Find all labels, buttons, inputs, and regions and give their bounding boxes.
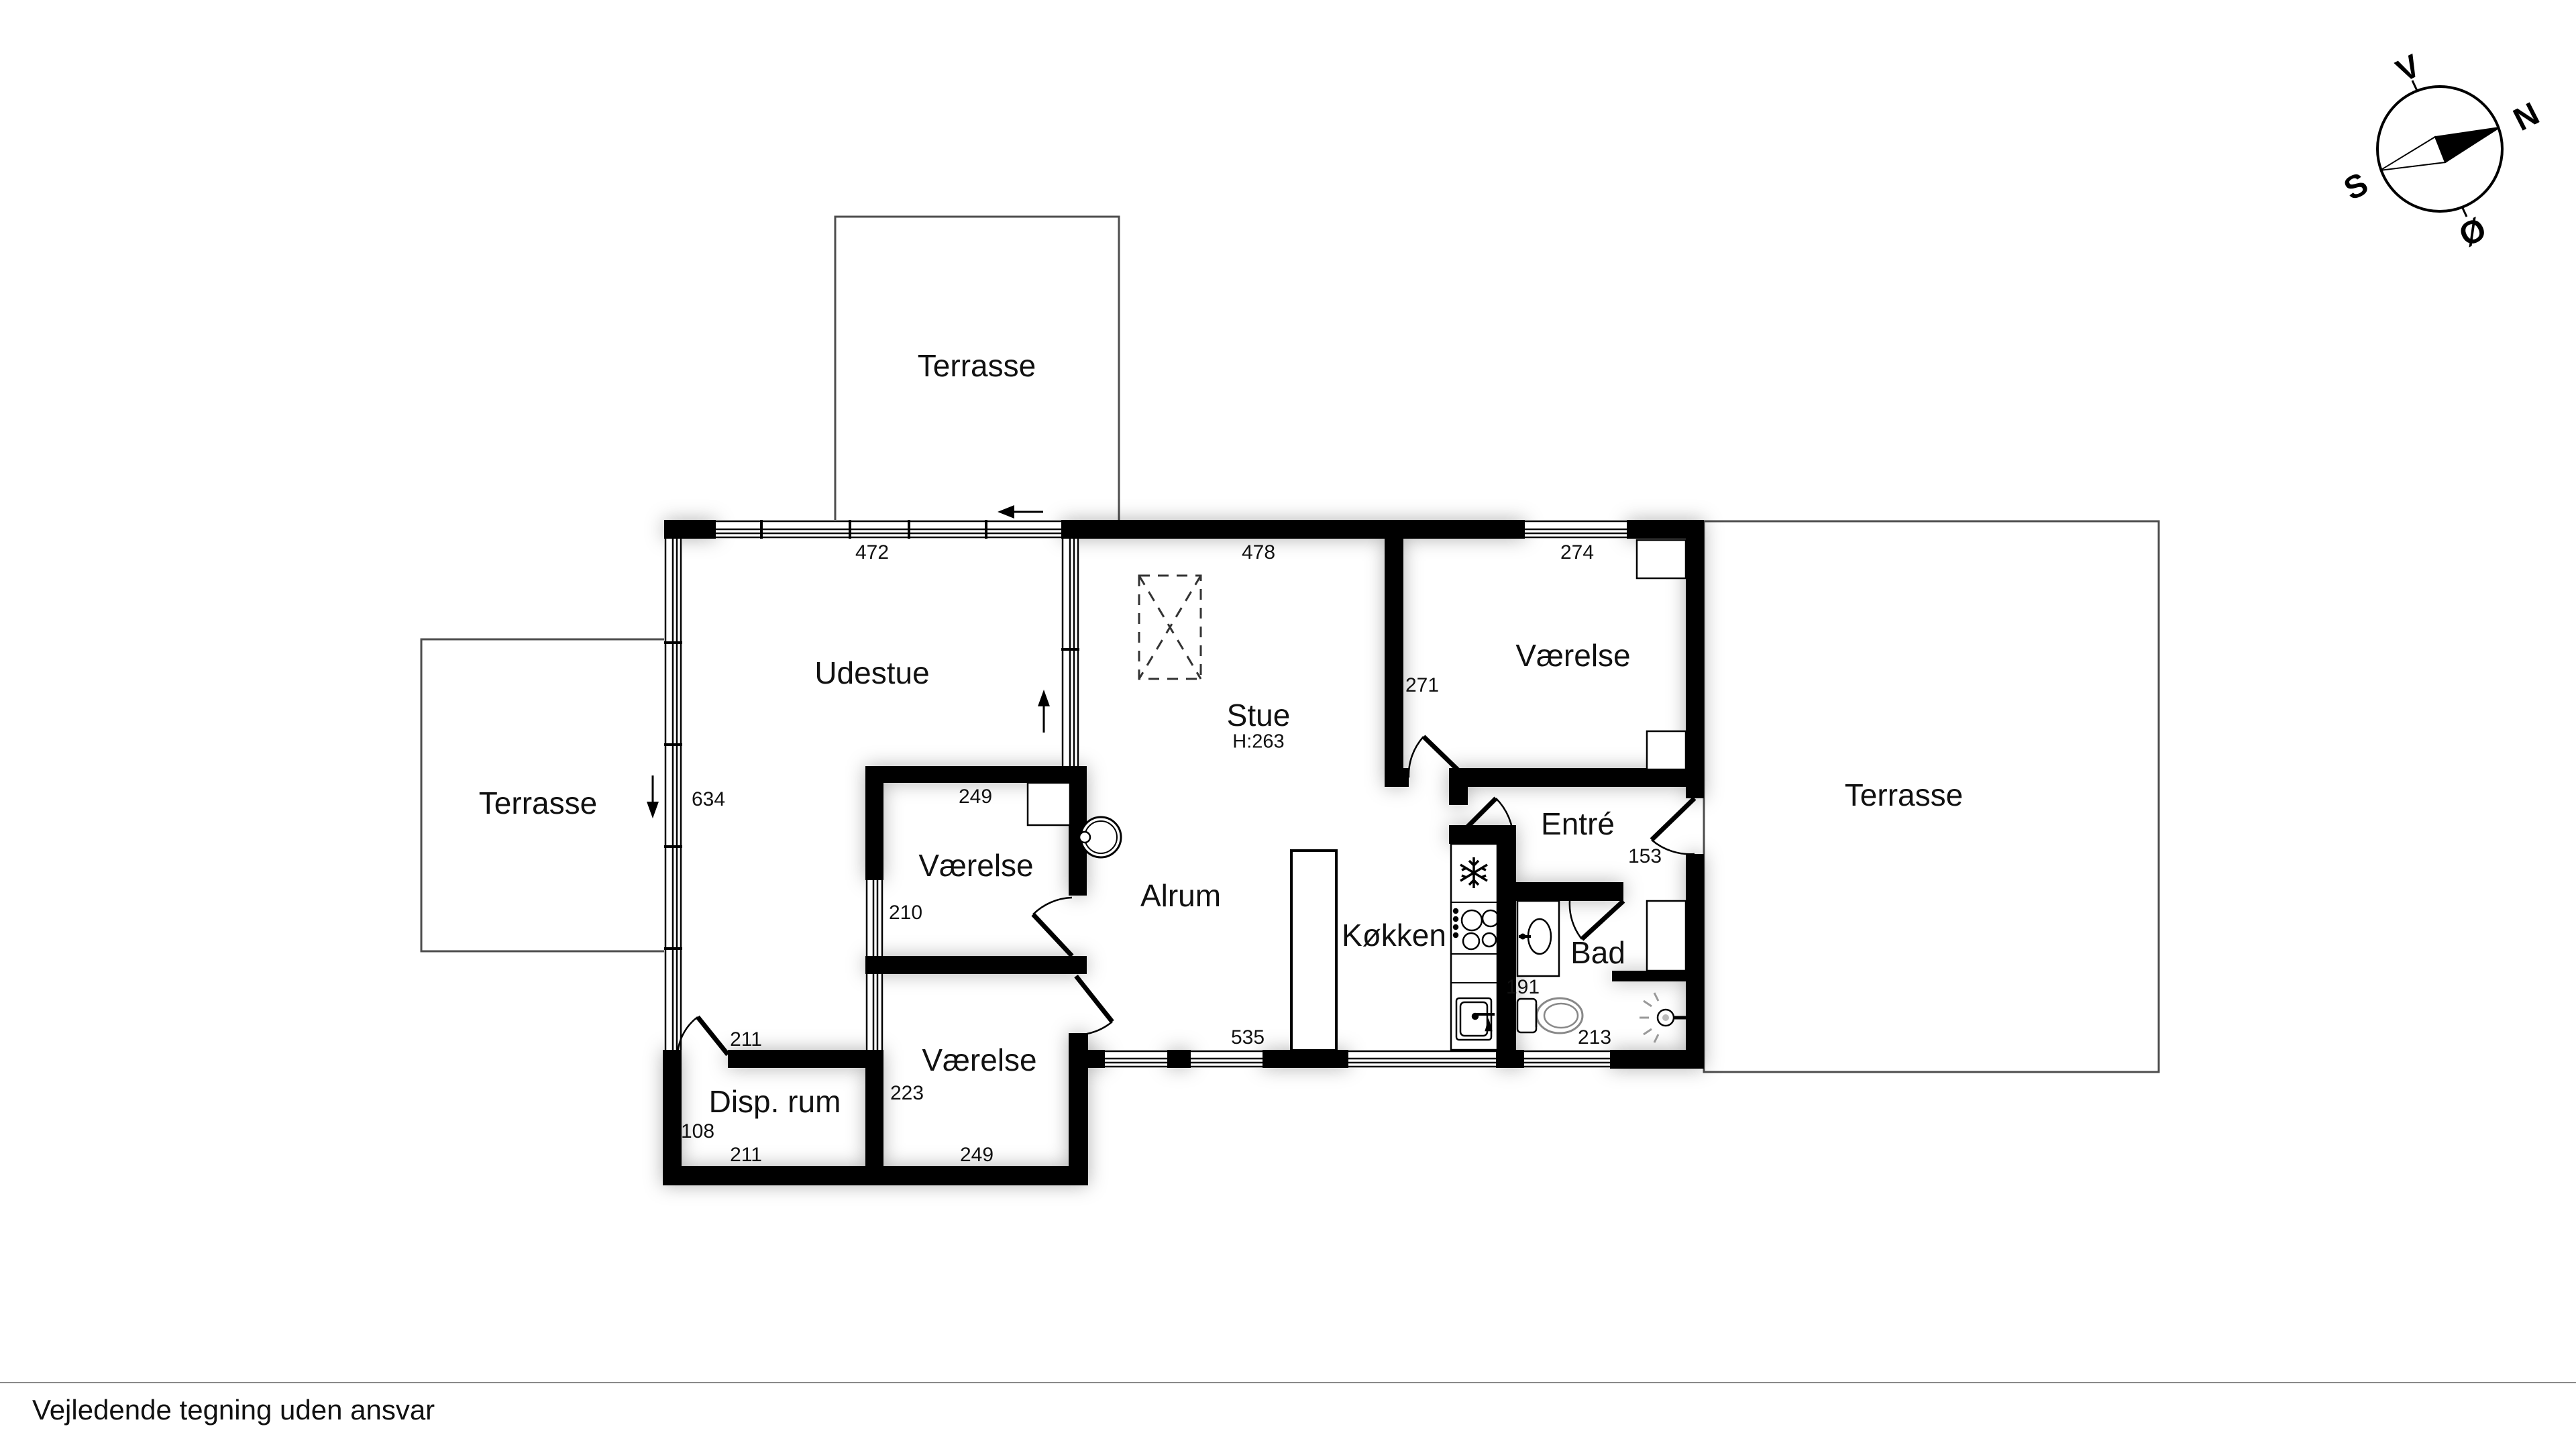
room-label-stue: Stue xyxy=(1227,697,1291,733)
room-label-stue-height: H:263 xyxy=(1232,731,1284,753)
room-label-vaerelse-ne: Værelse xyxy=(1515,637,1630,674)
closet-bad xyxy=(1647,901,1686,971)
shower-icon xyxy=(1640,993,1686,1042)
room-label-vaerelse-sw: Værelse xyxy=(922,1042,1036,1078)
closet-vaerelse-ne-top xyxy=(1637,540,1686,578)
dim-vaerelse-mid-height: 210 xyxy=(889,902,922,924)
wood-stove xyxy=(1079,817,1121,857)
kitchen-island xyxy=(1291,851,1336,1051)
bathroom-sink-icon xyxy=(1517,901,1559,976)
door-vaerelse-ne xyxy=(1409,737,1466,777)
skylight-symbol xyxy=(1139,576,1201,679)
door-disp-rum xyxy=(678,1017,728,1059)
dim-bad-width: 191 xyxy=(1506,976,1540,999)
compass-west-label: V xyxy=(2391,48,2426,90)
dim-vaerelse-sw-width: 249 xyxy=(960,1144,994,1167)
toilet-icon xyxy=(1517,998,1582,1033)
window-north-vaerelse xyxy=(1525,520,1627,539)
dim-udestue-width: 472 xyxy=(855,541,889,564)
compass-south-label: S xyxy=(2339,166,2374,208)
door-vaerelse-mid xyxy=(1033,898,1072,956)
compass-north-label: N xyxy=(2508,96,2545,138)
dim-entre-width: 153 xyxy=(1628,845,1662,868)
dim-vaerelse-mid-width: 249 xyxy=(959,786,992,808)
window-north-udestue xyxy=(716,520,1061,539)
room-label-terrasse-top: Terrasse xyxy=(918,347,1036,384)
dim-disp-rum-height: 108 xyxy=(681,1120,714,1143)
door-bad xyxy=(1570,901,1623,939)
dim-disp-rum-width-top: 211 xyxy=(730,1028,762,1051)
footer-divider xyxy=(0,1382,2576,1383)
window-vaerelse-sw-west xyxy=(865,974,883,1050)
closets xyxy=(1028,540,1686,971)
window-udestue-stue xyxy=(1061,539,1079,766)
room-label-terrasse-right: Terrasse xyxy=(1845,777,1963,813)
closet-vaerelse-ne-bottom xyxy=(1647,731,1686,769)
dim-disp-rum-width-bottom: 211 xyxy=(730,1144,762,1167)
dim-stue-width: 478 xyxy=(1242,541,1275,564)
compass-rose: V N S Ø xyxy=(2339,48,2545,254)
room-label-vaerelse-mid: Værelse xyxy=(918,847,1033,883)
room-label-bad: Bad xyxy=(1570,934,1625,971)
room-label-disp-rum: Disp. rum xyxy=(709,1083,841,1120)
room-label-koekken: Køkken xyxy=(1342,917,1446,953)
room-label-alrum: Alrum xyxy=(1140,877,1221,914)
dim-bad-south-width: 213 xyxy=(1578,1026,1611,1049)
room-label-entre: Entré xyxy=(1541,806,1615,842)
room-label-terrasse-left: Terrasse xyxy=(479,785,597,821)
dim-vaerelse-ne-width: 274 xyxy=(1560,541,1594,564)
dim-vaerelse-sw-height: 223 xyxy=(890,1082,924,1105)
arrow-udestue-up-icon xyxy=(1038,690,1050,733)
door-vaerelse-sw xyxy=(1076,976,1112,1035)
closet-vaerelse-mid xyxy=(1028,783,1070,825)
disclaimer-text: Vejledende tegning uden ansvar xyxy=(32,1394,435,1426)
window-vaerelse-mid-west xyxy=(865,880,883,956)
dim-vaerelse-ne-height: 271 xyxy=(1405,674,1439,697)
kitchen-appliance-strip xyxy=(1451,844,1499,1050)
dim-alrum-width: 535 xyxy=(1231,1026,1265,1049)
window-west-udestue xyxy=(664,539,682,1050)
dim-udestue-height: 634 xyxy=(692,788,725,811)
compass-east-label: Ø xyxy=(2454,211,2492,254)
room-label-udestue: Udestue xyxy=(814,655,929,691)
